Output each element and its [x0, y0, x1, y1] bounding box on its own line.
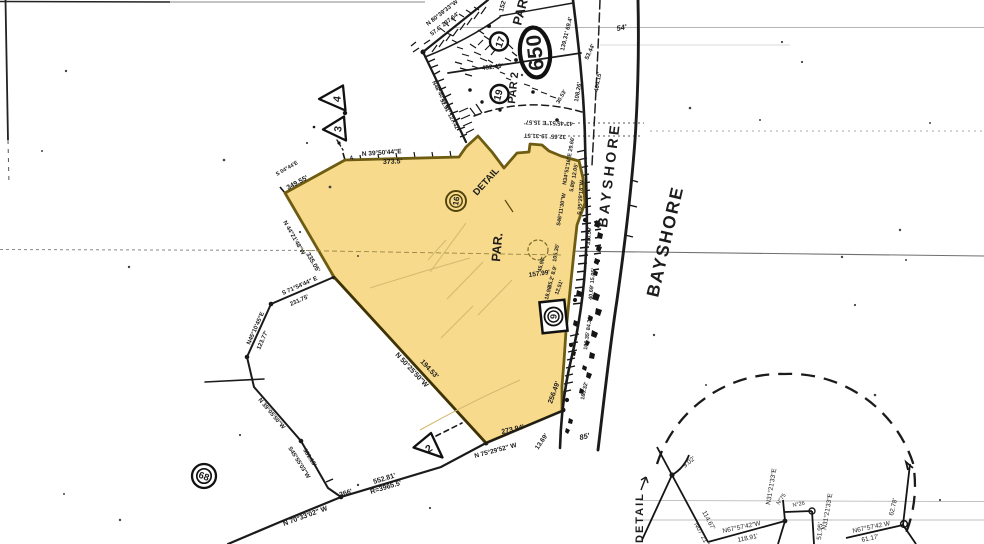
svg-text:9: 9 [548, 314, 558, 320]
svg-text:DETAIL: DETAIL [634, 492, 646, 543]
svg-text:373.5': 373.5' [383, 158, 403, 166]
svg-text:650: 650 [522, 33, 549, 72]
svg-text:54': 54' [616, 22, 628, 33]
svg-text:PAR.: PAR. [489, 232, 505, 262]
